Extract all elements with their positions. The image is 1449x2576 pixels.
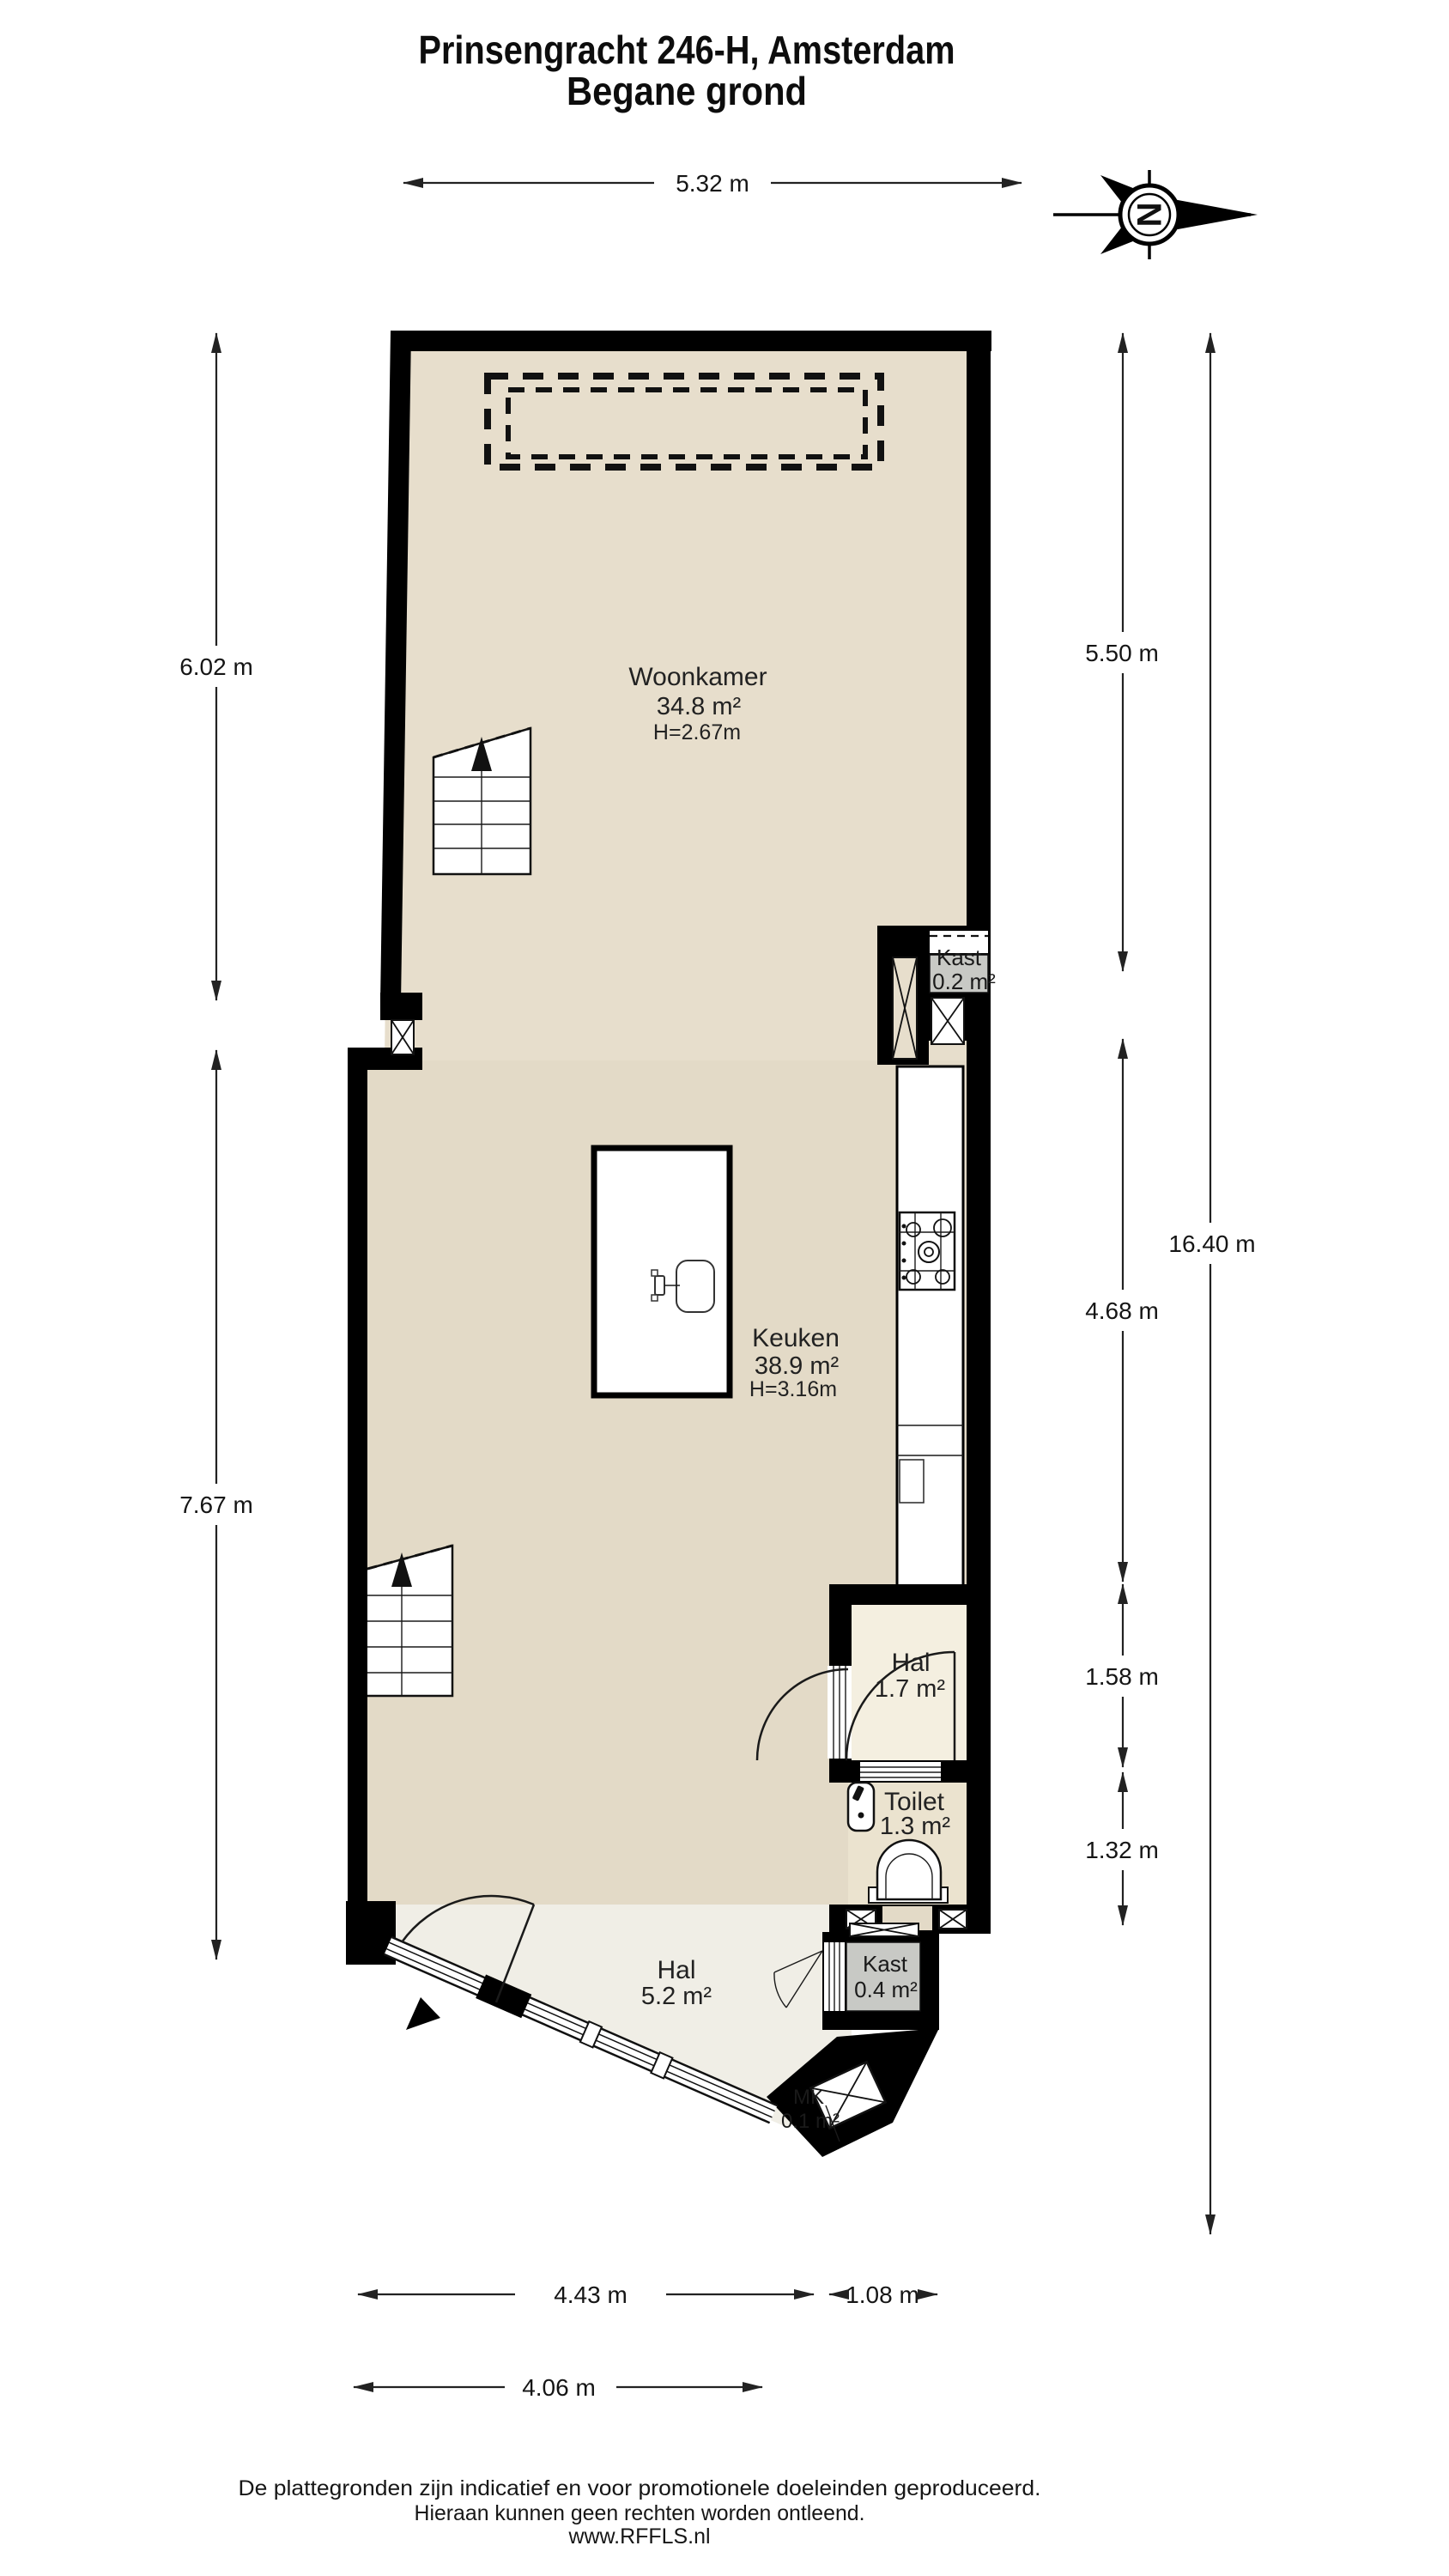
dim-right-mid: 4.68 m (1085, 1297, 1159, 1324)
toilet-area: 1.3 m² (880, 1813, 951, 1840)
dim-left-lower: 7.67 m (179, 1492, 253, 1518)
wall-hal-top (829, 1584, 968, 1605)
keuken-area: 38.9 m² (755, 1352, 840, 1380)
kitchen-counter (897, 1066, 963, 1587)
dim-right-total: 16.40 m (1168, 1230, 1255, 1257)
dim-top: 5.32 m (676, 170, 749, 197)
column-xbox (391, 1020, 414, 1054)
keuken-height: H=3.16m (749, 1377, 837, 1401)
kast-onder-label: Kast (863, 1951, 908, 1977)
footer-disclaimer: De plattegronden zijn indicatief en voor… (239, 2476, 1041, 2549)
dim-right-upper: 5.50 m (1085, 640, 1159, 666)
hal-entree-label: Hal (657, 1956, 695, 1984)
footer-website: www.RFFLS.nl (568, 2524, 711, 2549)
wall-right-lower (967, 1036, 991, 1934)
dim-right-toilet: 1.32 m (1085, 1837, 1159, 1863)
floorplan-drawing: Woonkamer 34.8 m² H=2.67m Kast 0.2 m² Ke… (0, 0, 1449, 2576)
kast-onder-area: 0.4 m² (854, 1977, 918, 2002)
wall-junction-block (380, 993, 422, 1020)
dim-left-upper: 6.02 m (179, 653, 253, 680)
footer-line2: Hieraan kunnen geen rechten worden ontle… (415, 2501, 865, 2525)
kast-boven-area: 0.2 m² (932, 969, 996, 994)
duct-xbox (939, 1910, 967, 1929)
compass-letter: N (1130, 203, 1167, 228)
hal-klein-label: Hal (891, 1649, 930, 1677)
sink (676, 1261, 714, 1312)
page-subtitle: Begane grond (567, 69, 807, 113)
north-compass-icon: N (1053, 170, 1258, 259)
woonkamer-area: 34.8 m² (657, 693, 742, 720)
floorplan-page: Woonkamer 34.8 m² H=2.67m Kast 0.2 m² Ke… (0, 0, 1449, 2576)
hal-klein-area: 1.7 m² (875, 1675, 946, 1703)
page-title: Prinsengracht 246-H, Amsterdam (419, 27, 955, 72)
keuken-label: Keuken (752, 1324, 840, 1352)
dim-bottom-lower: 4.06 m (522, 2374, 596, 2401)
wall-top (391, 331, 991, 351)
dim-bottom-main: 4.43 m (554, 2281, 627, 2308)
dim-right-hal: 1.58 m (1085, 1663, 1159, 1690)
wall-left-keuken (348, 1048, 367, 1929)
mk-label: MK (793, 2086, 824, 2109)
duct-xbox (931, 998, 964, 1044)
hal-entree-area: 5.2 m² (641, 1983, 712, 2010)
mk-area: 0.1 m² (781, 2110, 840, 2133)
counter-appliance (900, 1460, 924, 1503)
washbasin (848, 1783, 874, 1831)
wall-right-upper (967, 331, 991, 932)
woonkamer-height: H=2.67m (653, 720, 741, 744)
stove-icon (900, 1212, 955, 1290)
footer-line1: De plattegronden zijn indicatief en voor… (239, 2476, 1041, 2500)
kast-boven-label: Kast (937, 945, 982, 970)
duct-xstrip (850, 1923, 919, 1936)
dim-bottom-kast: 1.08 m (846, 2281, 919, 2308)
entrance-arrow (406, 1997, 440, 2030)
header: Prinsengracht 246-H, Amsterdam Begane gr… (419, 27, 955, 113)
duct-xbox (893, 957, 917, 1059)
woonkamer-label: Woonkamer (628, 663, 767, 691)
kitchen-island (594, 1148, 730, 1395)
faucet-icon (655, 1276, 664, 1295)
